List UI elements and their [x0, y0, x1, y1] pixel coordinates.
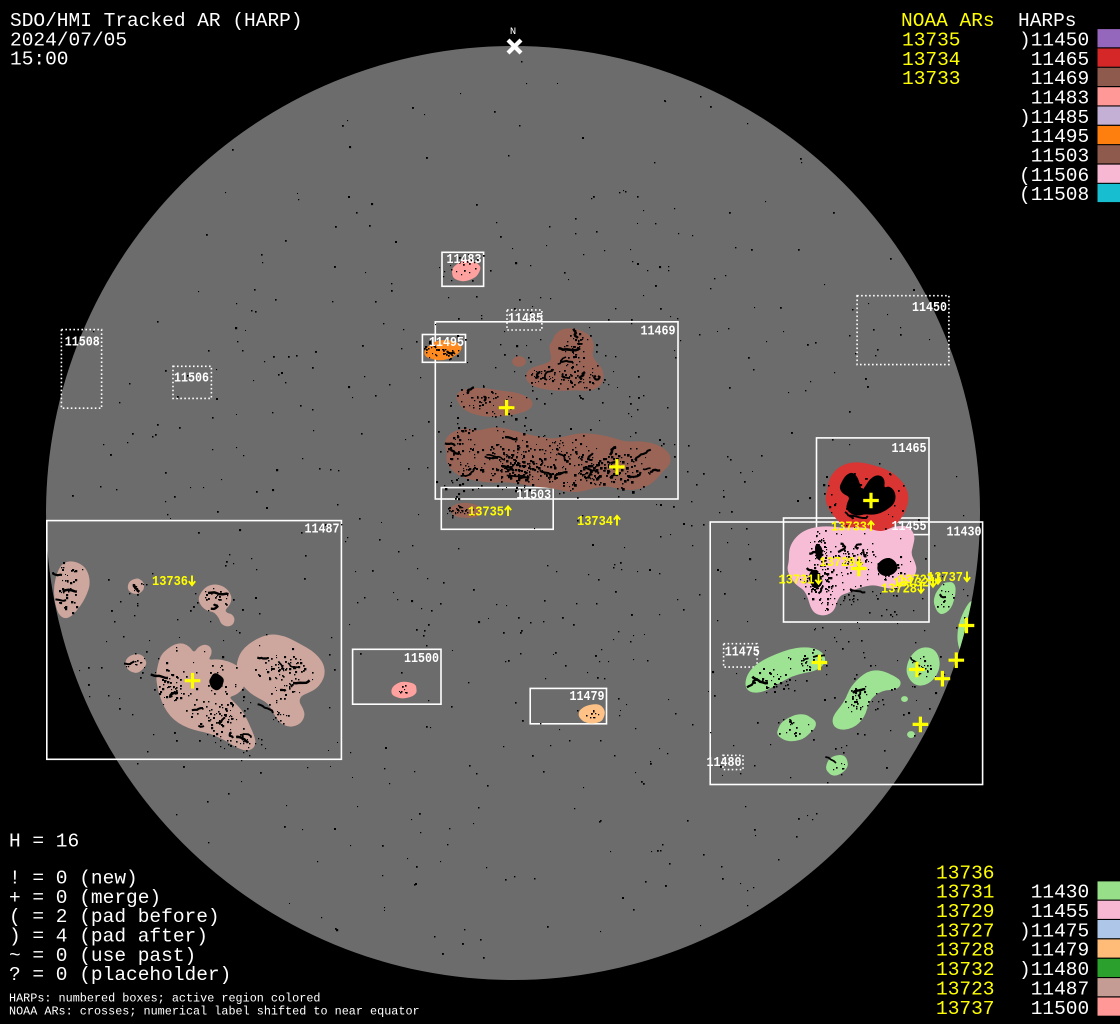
svg-text:11469: 11469 [641, 325, 676, 340]
svg-text:13737: 13737 [927, 571, 963, 586]
svg-text:11508: 11508 [65, 335, 100, 350]
svg-text:NOAA ARs: crosses; numerical l: NOAA ARs: crosses; numerical label shift… [9, 1005, 420, 1019]
svg-text:11483: 11483 [447, 253, 482, 268]
svg-text:15:00: 15:00 [10, 49, 69, 71]
svg-text:11500: 11500 [404, 652, 439, 667]
svg-text:13733: 13733 [831, 521, 867, 536]
svg-text:11479: 11479 [570, 690, 605, 705]
svg-text:H = 16: H = 16 [9, 831, 79, 853]
svg-text:? = 0 (placeholder): ? = 0 (placeholder) [9, 964, 231, 986]
svg-text:11487: 11487 [305, 523, 340, 538]
svg-text:11430: 11430 [947, 526, 982, 541]
svg-text:11455: 11455 [892, 520, 927, 535]
svg-text:11503: 11503 [516, 488, 551, 503]
svg-text:11495: 11495 [429, 336, 464, 351]
svg-text:11465: 11465 [892, 442, 927, 457]
svg-text:11506: 11506 [174, 372, 209, 387]
svg-text:13728: 13728 [881, 583, 917, 598]
svg-text:HARPs: numbered boxes; active: HARPs: numbered boxes; active region col… [9, 992, 321, 1006]
svg-text:13734: 13734 [577, 515, 613, 530]
svg-text:13737: 13737 [936, 998, 995, 1020]
svg-text:13733: 13733 [902, 68, 961, 90]
svg-text:13735: 13735 [468, 506, 504, 521]
svg-text:11450: 11450 [912, 301, 947, 316]
svg-text:11475: 11475 [725, 646, 760, 661]
svg-text:11480: 11480 [707, 756, 742, 771]
svg-text:13729: 13729 [820, 556, 856, 571]
svg-text:11485: 11485 [508, 312, 543, 327]
svg-text:11500: 11500 [1019, 998, 1089, 1020]
svg-text:13731: 13731 [779, 574, 815, 589]
svg-text:N: N [510, 26, 516, 38]
svg-text:(11508: (11508 [1019, 184, 1089, 206]
svg-text:13736: 13736 [152, 575, 188, 590]
